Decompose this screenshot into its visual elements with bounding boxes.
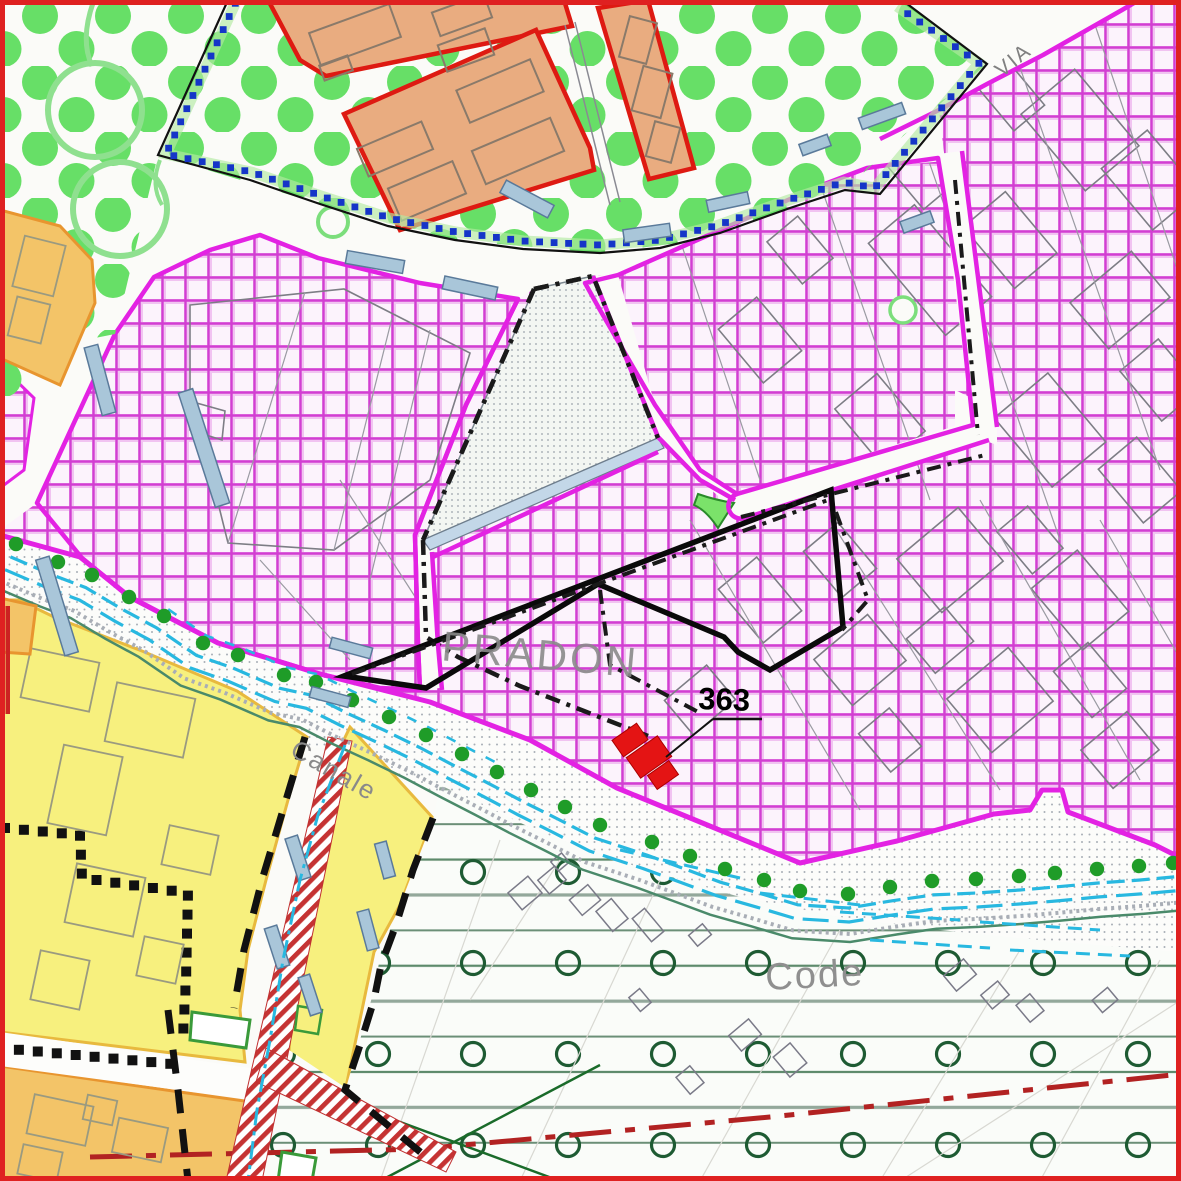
svg-text:363: 363 [698,681,751,718]
svg-text:Code: Code [764,952,865,999]
